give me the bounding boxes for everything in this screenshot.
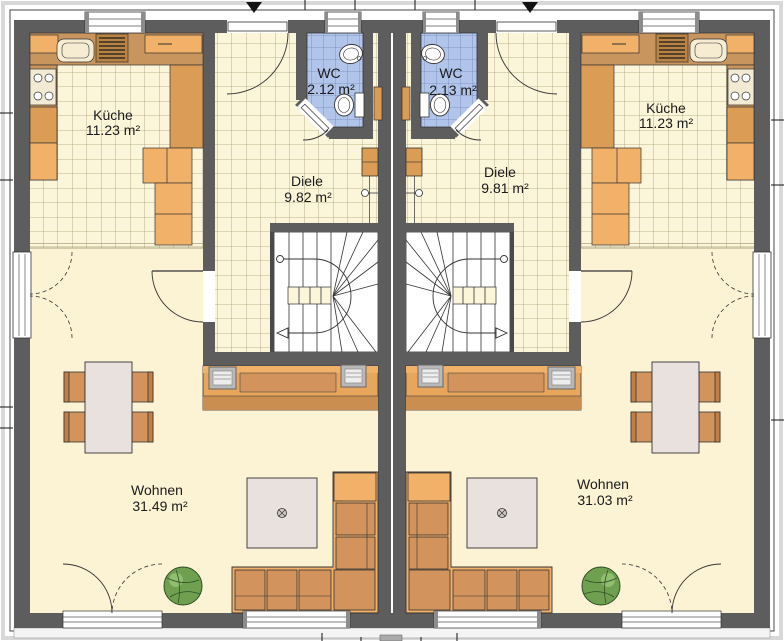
room-area-kueche-right: 11.23 m²: [639, 115, 694, 131]
room-label-wohnen-right: Wohnen: [577, 476, 629, 492]
room-label-kueche-right: Küche: [646, 100, 686, 116]
room-label-wohnen-left: Wohnen: [131, 482, 183, 498]
room-area-diele-right: 9.81 m²: [481, 180, 529, 196]
room-area-diele-left: 9.82 m²: [284, 189, 332, 205]
unit-right: [392, 12, 771, 628]
room-label-wc-right: WC: [439, 65, 462, 81]
room-area-wc-left: 2.12 m²: [307, 81, 355, 97]
unit-left: [13, 12, 392, 628]
room-label-diele-right: Diele: [484, 164, 516, 180]
room-label-diele-left: Diele: [291, 173, 323, 189]
party-wall-footing: [380, 635, 402, 641]
room-label-kueche-left: Küche: [93, 107, 133, 123]
room-area-kueche-left: 11.23 m²: [86, 122, 141, 138]
room-area-wohnen-left: 31.49 m²: [132, 498, 188, 514]
floor-plan-drawing: Küche 11.23 m² Küche 11.23 m² WC 2.12 m²…: [0, 0, 784, 641]
room-area-wohnen-right: 31.03 m²: [577, 492, 633, 508]
room-area-wc-right: 2.13 m²: [429, 82, 477, 98]
floor-plan-sheet: Küche 11.23 m² Küche 11.23 m² WC 2.12 m²…: [0, 0, 784, 641]
room-label-wc-left: WC: [317, 65, 340, 81]
